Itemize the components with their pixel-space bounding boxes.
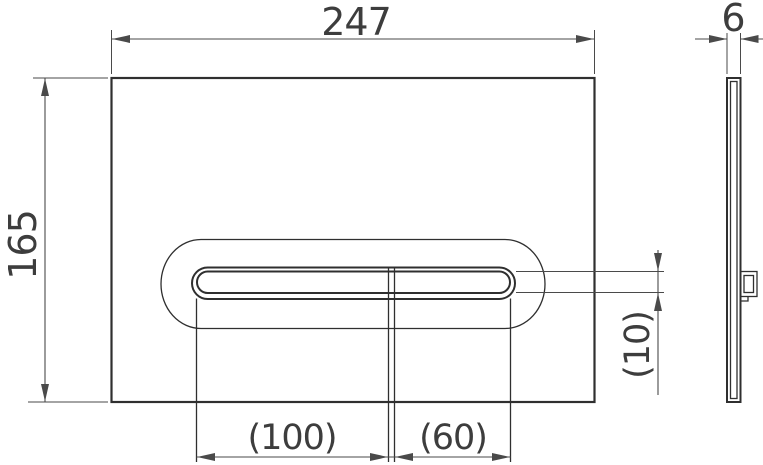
dim-small-button-label: (60) [419, 418, 487, 458]
dimension-overall-height: 165 [1, 78, 108, 402]
dimension-arrow [576, 35, 594, 43]
dim-overall-width-label: 247 [321, 0, 391, 44]
side-profile-inner-line [731, 82, 738, 399]
side-view-profile [727, 78, 757, 402]
dim-thickness-label: 6 [721, 0, 744, 40]
dimension-overall-width: 247 [112, 0, 595, 74]
slot-inner-outline [197, 272, 510, 294]
dimension-slot-height: (10) [516, 250, 664, 395]
side-profile-outline [727, 78, 741, 402]
dimension-arrow [654, 253, 662, 271]
front-view-plate [112, 78, 595, 462]
side-mount-boss-step [741, 297, 749, 302]
dimension-arrow [492, 453, 510, 461]
side-mount-boss-inner [744, 276, 754, 293]
oval-recess-outline [161, 240, 545, 329]
dim-overall-height-label: 165 [1, 210, 45, 280]
dimension-arrow [370, 453, 388, 461]
dimension-arrow [112, 35, 130, 43]
dimension-button-widths: (100) (60) [197, 418, 511, 461]
flush-plate-drawing: 247 165 (100) (60) (10) 6 [0, 0, 763, 465]
dimension-arrow [654, 293, 662, 311]
dimension-arrow [395, 453, 413, 461]
dimension-arrow [41, 79, 49, 97]
technical-drawing-canvas: 247 165 (100) (60) (10) 6 [0, 0, 763, 465]
dimension-arrow [197, 453, 215, 461]
dim-large-button-label: (100) [247, 418, 336, 458]
dim-slot-height-label: (10) [618, 311, 658, 379]
dimension-arrow [41, 384, 49, 402]
dimension-thickness: 6 [695, 0, 763, 74]
